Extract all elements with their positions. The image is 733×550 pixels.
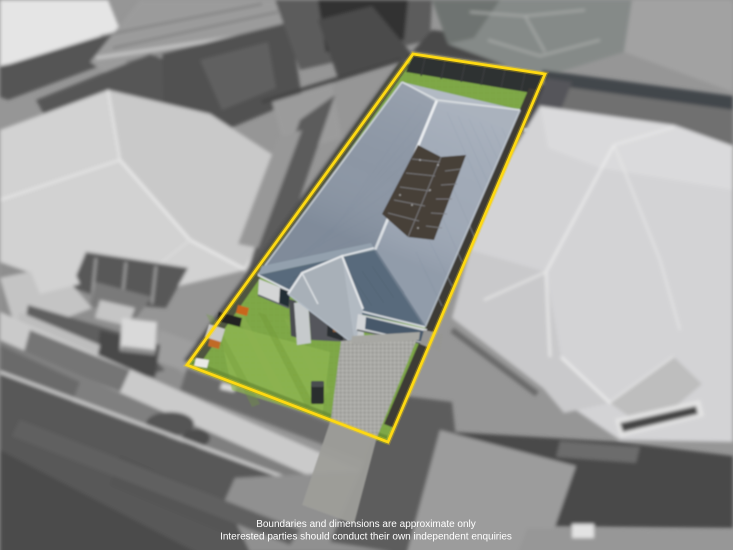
svg-text:Interested parties should cond: Interested parties should conduct their … — [220, 532, 512, 543]
svg-text:Boundaries and dimensions are: Boundaries and dimensions are approximat… — [256, 519, 476, 530]
